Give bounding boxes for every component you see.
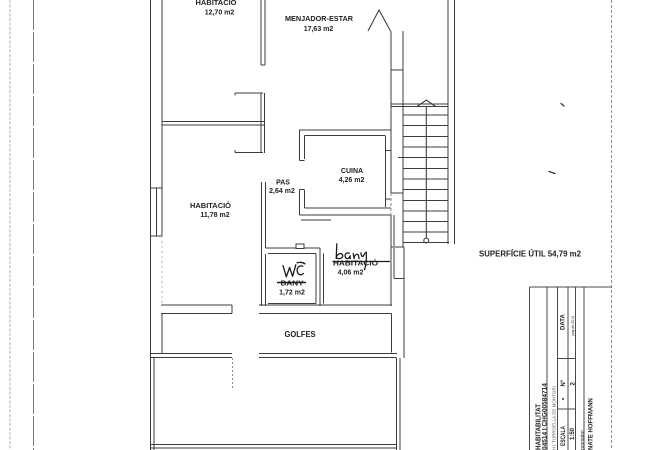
svg-text:PAS: PAS <box>276 180 290 187</box>
svg-text:SUPERFÍCIE ÚTIL 54,79 m2: SUPERFÍCIE ÚTIL 54,79 m2 <box>479 248 581 259</box>
svg-text:12,70 m2: 12,70 m2 <box>205 10 235 17</box>
svg-text:17,63 m2: 17,63 m2 <box>304 26 334 33</box>
svg-text:HABITACIÓ: HABITACIÓ <box>190 201 231 210</box>
svg-text:H1 TORROELLA DE MONTGRI: H1 TORROELLA DE MONTGRI <box>552 386 557 450</box>
svg-text:promotor: promotor <box>580 430 586 450</box>
svg-text:4,06 m2: 4,06 m2 <box>338 270 364 277</box>
svg-text:DATA: DATA <box>561 314 567 330</box>
svg-text:N°: N° <box>561 379 567 386</box>
svg-text:1:50: 1:50 <box>570 427 576 440</box>
svg-text:4,26 m2: 4,26 m2 <box>339 177 365 184</box>
svg-text:NATE HOFFMANN: NATE HOFFMANN <box>589 398 595 450</box>
svg-text:juny de 2014: juny de 2014 <box>571 316 575 337</box>
svg-text:ESCALA: ESCALA <box>561 425 567 446</box>
svg-text:BANY: BANY <box>281 281 304 288</box>
svg-text:CUINA: CUINA <box>341 168 363 175</box>
svg-text:HABITACIÓ: HABITACIÓ <box>196 0 237 7</box>
svg-text:2,64 m2: 2,64 m2 <box>269 188 295 195</box>
svg-text:HABITACIÓ: HABITACIÓ <box>333 259 379 268</box>
svg-text:MENJADOR-ESTAR: MENJADOR-ESTAR <box>285 14 354 23</box>
svg-text:1,72 m2: 1,72 m2 <box>279 290 305 297</box>
svg-text:04514 I CHG00584714: 04514 I CHG00584714 <box>542 383 549 450</box>
svg-text:GOLFES: GOLFES <box>285 330 317 339</box>
svg-text:11,78 m2: 11,78 m2 <box>200 212 229 219</box>
